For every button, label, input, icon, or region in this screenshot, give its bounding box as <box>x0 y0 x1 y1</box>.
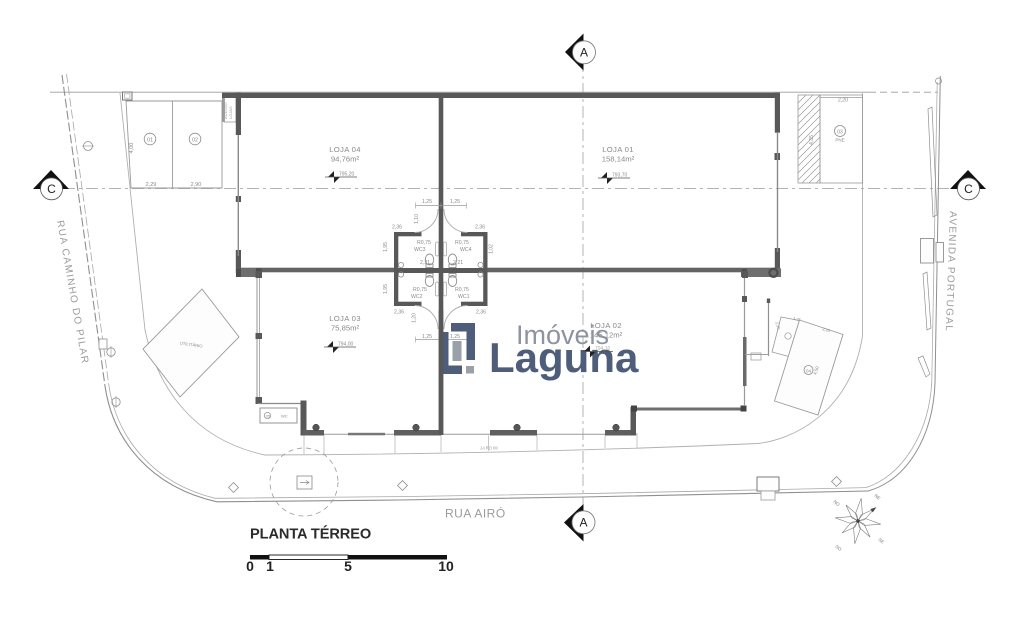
svg-text:10: 10 <box>438 558 454 574</box>
svg-text:LOJA 03: LOJA 03 <box>329 314 361 323</box>
svg-text:PLANTA TÉRREO: PLANTA TÉRREO <box>250 526 371 543</box>
svg-text:158,14m²: 158,14m² <box>602 155 635 164</box>
svg-text:1,20: 1,20 <box>412 313 418 323</box>
svg-text:02: 02 <box>192 138 198 144</box>
svg-text:795,20: 795,20 <box>339 172 355 178</box>
svg-text:C: C <box>47 182 56 196</box>
svg-text:C: C <box>964 182 973 196</box>
svg-text:2,36: 2,36 <box>392 225 402 231</box>
svg-text:R0,75: R0,75 <box>455 240 469 246</box>
svg-text:JARDIM: JARDIM <box>480 446 499 451</box>
svg-text:01: 01 <box>147 138 153 144</box>
svg-text:LOJA 01: LOJA 01 <box>602 145 634 154</box>
svg-text:2,36: 2,36 <box>476 310 486 316</box>
svg-text:1,95: 1,95 <box>383 284 389 294</box>
svg-text:794,10: 794,10 <box>595 346 611 352</box>
svg-text:05: 05 <box>266 414 271 419</box>
svg-text:794,00: 794,00 <box>338 342 354 348</box>
svg-text:2,36: 2,36 <box>475 225 485 231</box>
svg-text:LOJAS: LOJAS <box>228 106 233 119</box>
svg-text:2,21: 2,21 <box>453 260 463 266</box>
svg-text:04: 04 <box>806 368 812 373</box>
svg-text:WC: WC <box>281 414 288 419</box>
svg-text:4,35: 4,35 <box>809 135 815 145</box>
svg-text:PNE: PNE <box>835 138 844 143</box>
svg-text:75,85m²: 75,85m² <box>331 324 360 333</box>
svg-text:0: 0 <box>246 558 254 574</box>
svg-text:2,21: 2,21 <box>420 260 430 266</box>
svg-text:2,90: 2,90 <box>191 182 202 188</box>
svg-text:2,20: 2,20 <box>838 98 848 104</box>
svg-text:LOJA 04: LOJA 04 <box>329 145 361 154</box>
svg-text:1,95: 1,95 <box>383 242 389 252</box>
svg-text:R0,75: R0,75 <box>455 287 469 293</box>
svg-text:WC4: WC4 <box>460 247 472 253</box>
svg-text:R0,75: R0,75 <box>417 240 431 246</box>
svg-text:1,25: 1,25 <box>422 334 432 340</box>
svg-text:1,25: 1,25 <box>422 199 432 205</box>
svg-text:1: 1 <box>266 558 274 574</box>
svg-text:RUA AIRÓ: RUA AIRÓ <box>445 506 506 521</box>
svg-text:5: 5 <box>344 558 352 574</box>
svg-text:793,70: 793,70 <box>612 173 628 179</box>
svg-text:03: 03 <box>837 130 843 136</box>
svg-text:Laguna: Laguna <box>489 334 639 381</box>
svg-text:WC3: WC3 <box>414 247 426 253</box>
svg-text:A: A <box>579 516 587 530</box>
svg-text:WC2: WC2 <box>411 294 423 300</box>
svg-text:WC1: WC1 <box>458 294 470 300</box>
svg-text:4,00: 4,00 <box>129 143 135 154</box>
svg-text:1,25: 1,25 <box>450 199 460 205</box>
svg-text:A: A <box>580 46 588 60</box>
svg-text:1,25: 1,25 <box>450 334 460 340</box>
svg-text:94,76m²: 94,76m² <box>331 155 360 164</box>
svg-text:1,10: 1,10 <box>414 214 420 224</box>
svg-text:R0,75: R0,75 <box>413 287 427 293</box>
svg-text:1,02: 1,02 <box>489 244 495 254</box>
svg-text:2,36: 2,36 <box>394 310 404 316</box>
svg-text:2,29: 2,29 <box>146 182 157 188</box>
